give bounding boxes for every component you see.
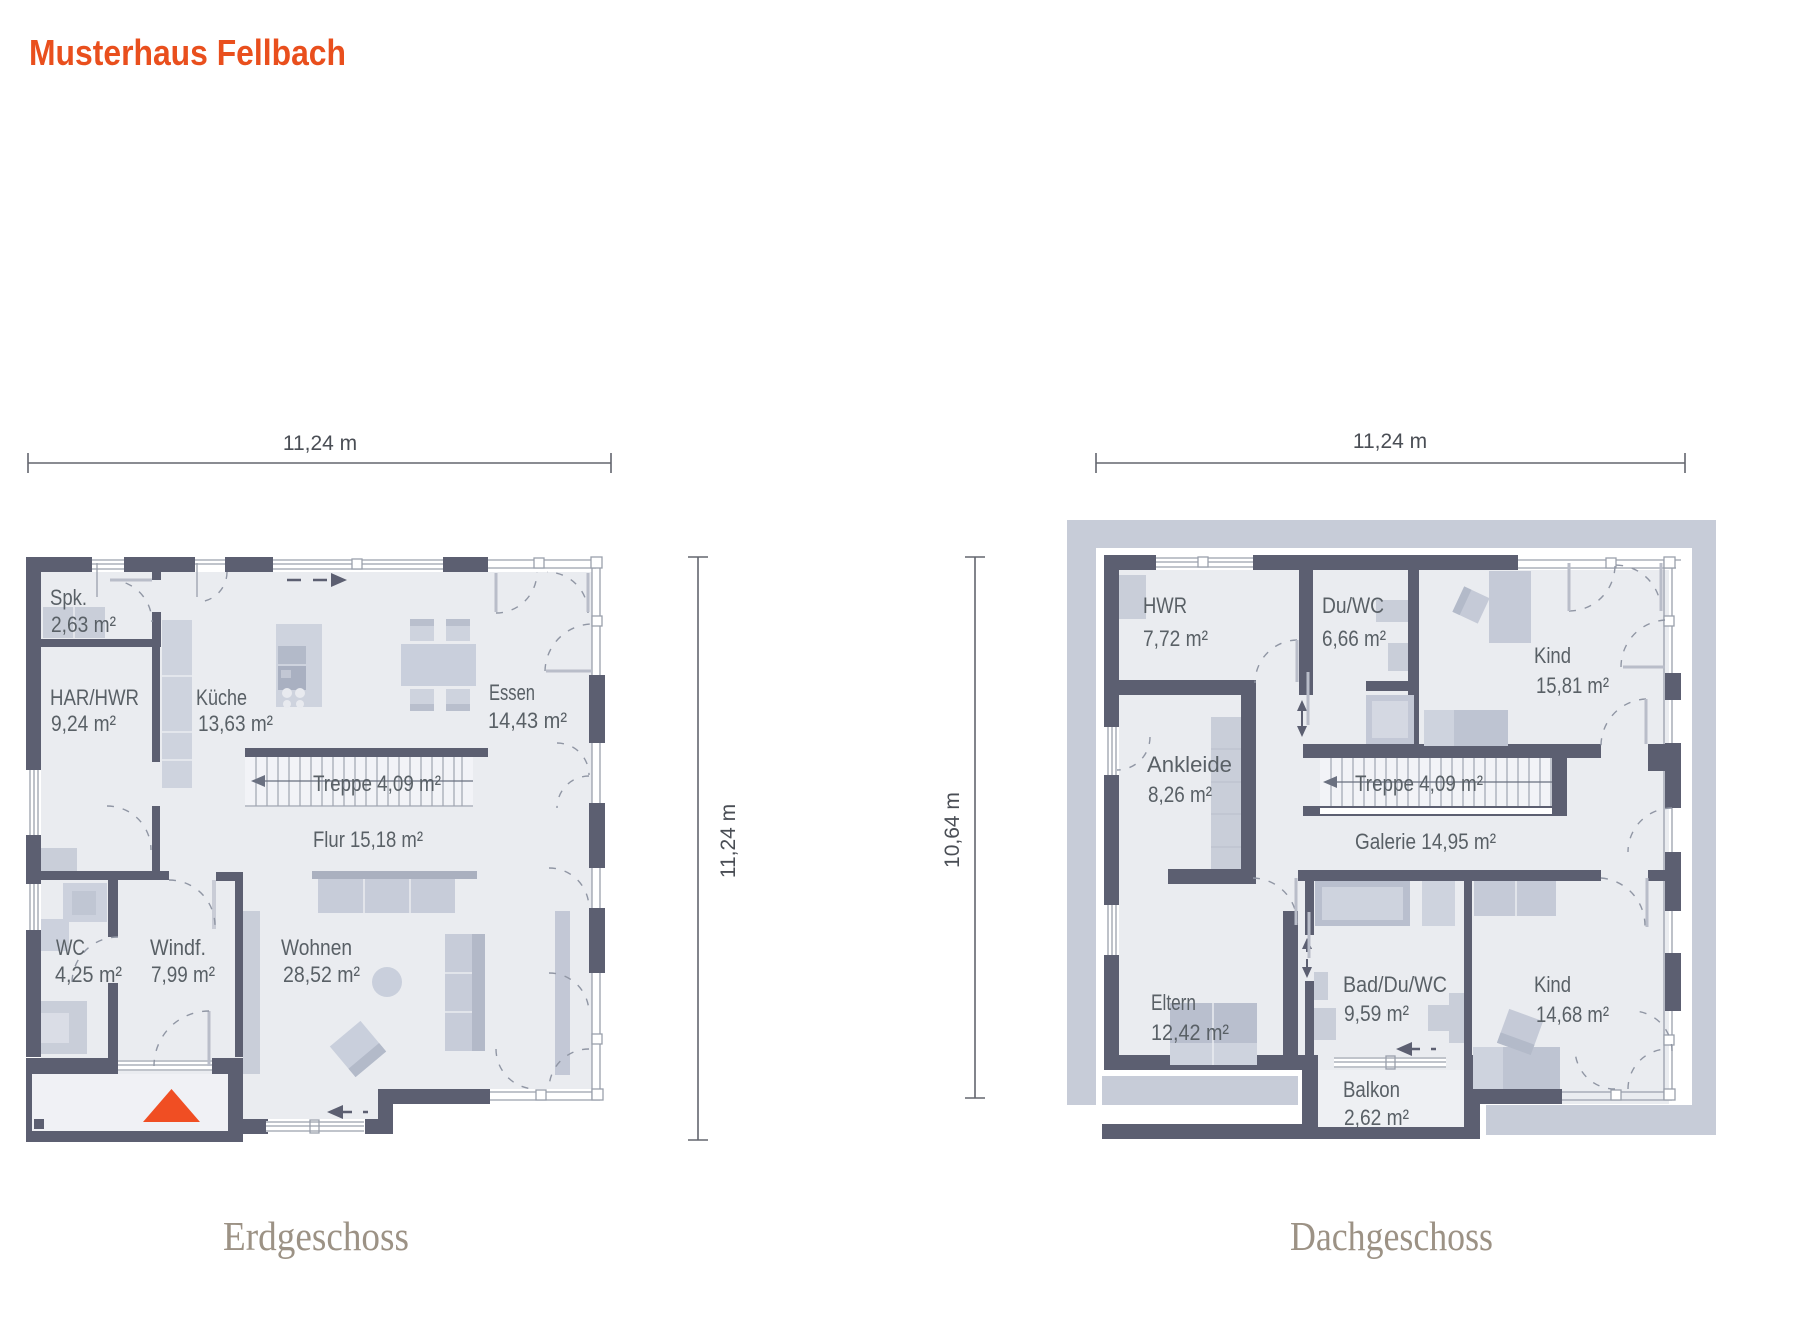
- svg-text:6,66 m²: 6,66 m²: [1322, 626, 1386, 651]
- svg-text:HWR: HWR: [1143, 593, 1187, 618]
- svg-text:8,26 m²: 8,26 m²: [1148, 782, 1212, 807]
- svg-text:Erdgeschoss: Erdgeschoss: [223, 1213, 409, 1259]
- svg-text:14,68 m²: 14,68 m²: [1536, 1002, 1609, 1027]
- svg-text:2,62 m²: 2,62 m²: [1344, 1105, 1409, 1130]
- svg-text:Treppe 4,09 m²: Treppe 4,09 m²: [313, 771, 441, 796]
- svg-text:Dachgeschoss: Dachgeschoss: [1290, 1213, 1493, 1259]
- svg-text:Treppe 4,09 m²: Treppe 4,09 m²: [1355, 771, 1483, 796]
- svg-text:Eltern: Eltern: [1151, 990, 1196, 1015]
- svg-text:Kind: Kind: [1534, 972, 1571, 997]
- svg-text:28,52 m²: 28,52 m²: [283, 962, 360, 987]
- svg-text:Kind: Kind: [1534, 643, 1571, 668]
- svg-text:12,42 m²: 12,42 m²: [1151, 1020, 1229, 1045]
- svg-text:Flur 15,18 m²: Flur 15,18 m²: [313, 827, 423, 852]
- svg-text:4,25 m²: 4,25 m²: [55, 962, 122, 987]
- svg-text:9,59 m²: 9,59 m²: [1344, 1001, 1409, 1026]
- svg-text:Balkon: Balkon: [1343, 1077, 1400, 1102]
- svg-text:14,43 m²: 14,43 m²: [488, 708, 567, 733]
- svg-text:WC: WC: [56, 935, 85, 960]
- svg-text:15,81 m²: 15,81 m²: [1536, 673, 1609, 698]
- svg-text:Bad/Du/WC: Bad/Du/WC: [1343, 972, 1447, 997]
- svg-text:10,64 m: 10,64 m: [941, 792, 964, 868]
- svg-text:7,99 m²: 7,99 m²: [151, 962, 215, 987]
- svg-text:Du/WC: Du/WC: [1322, 593, 1384, 618]
- svg-text:Wohnen: Wohnen: [281, 935, 352, 960]
- svg-text:11,24 m: 11,24 m: [717, 804, 740, 878]
- svg-text:13,63 m²: 13,63 m²: [198, 711, 273, 736]
- svg-text:Küche: Küche: [196, 685, 247, 710]
- svg-text:11,24 m: 11,24 m: [283, 432, 357, 455]
- svg-text:Musterhaus Fellbach: Musterhaus Fellbach: [29, 32, 346, 73]
- svg-text:Essen: Essen: [489, 680, 535, 705]
- svg-text:7,72 m²: 7,72 m²: [1143, 626, 1208, 651]
- svg-text:Galerie 14,95 m²: Galerie 14,95 m²: [1355, 829, 1496, 854]
- svg-text:11,24 m: 11,24 m: [1353, 430, 1427, 453]
- svg-text:2,63 m²: 2,63 m²: [51, 612, 116, 637]
- svg-text:Spk.: Spk.: [50, 585, 87, 610]
- svg-text:HAR/HWR: HAR/HWR: [50, 685, 139, 710]
- svg-text:9,24 m²: 9,24 m²: [51, 711, 116, 736]
- svg-text:Ankleide: Ankleide: [1147, 752, 1232, 777]
- svg-text:Windf.: Windf.: [150, 935, 206, 960]
